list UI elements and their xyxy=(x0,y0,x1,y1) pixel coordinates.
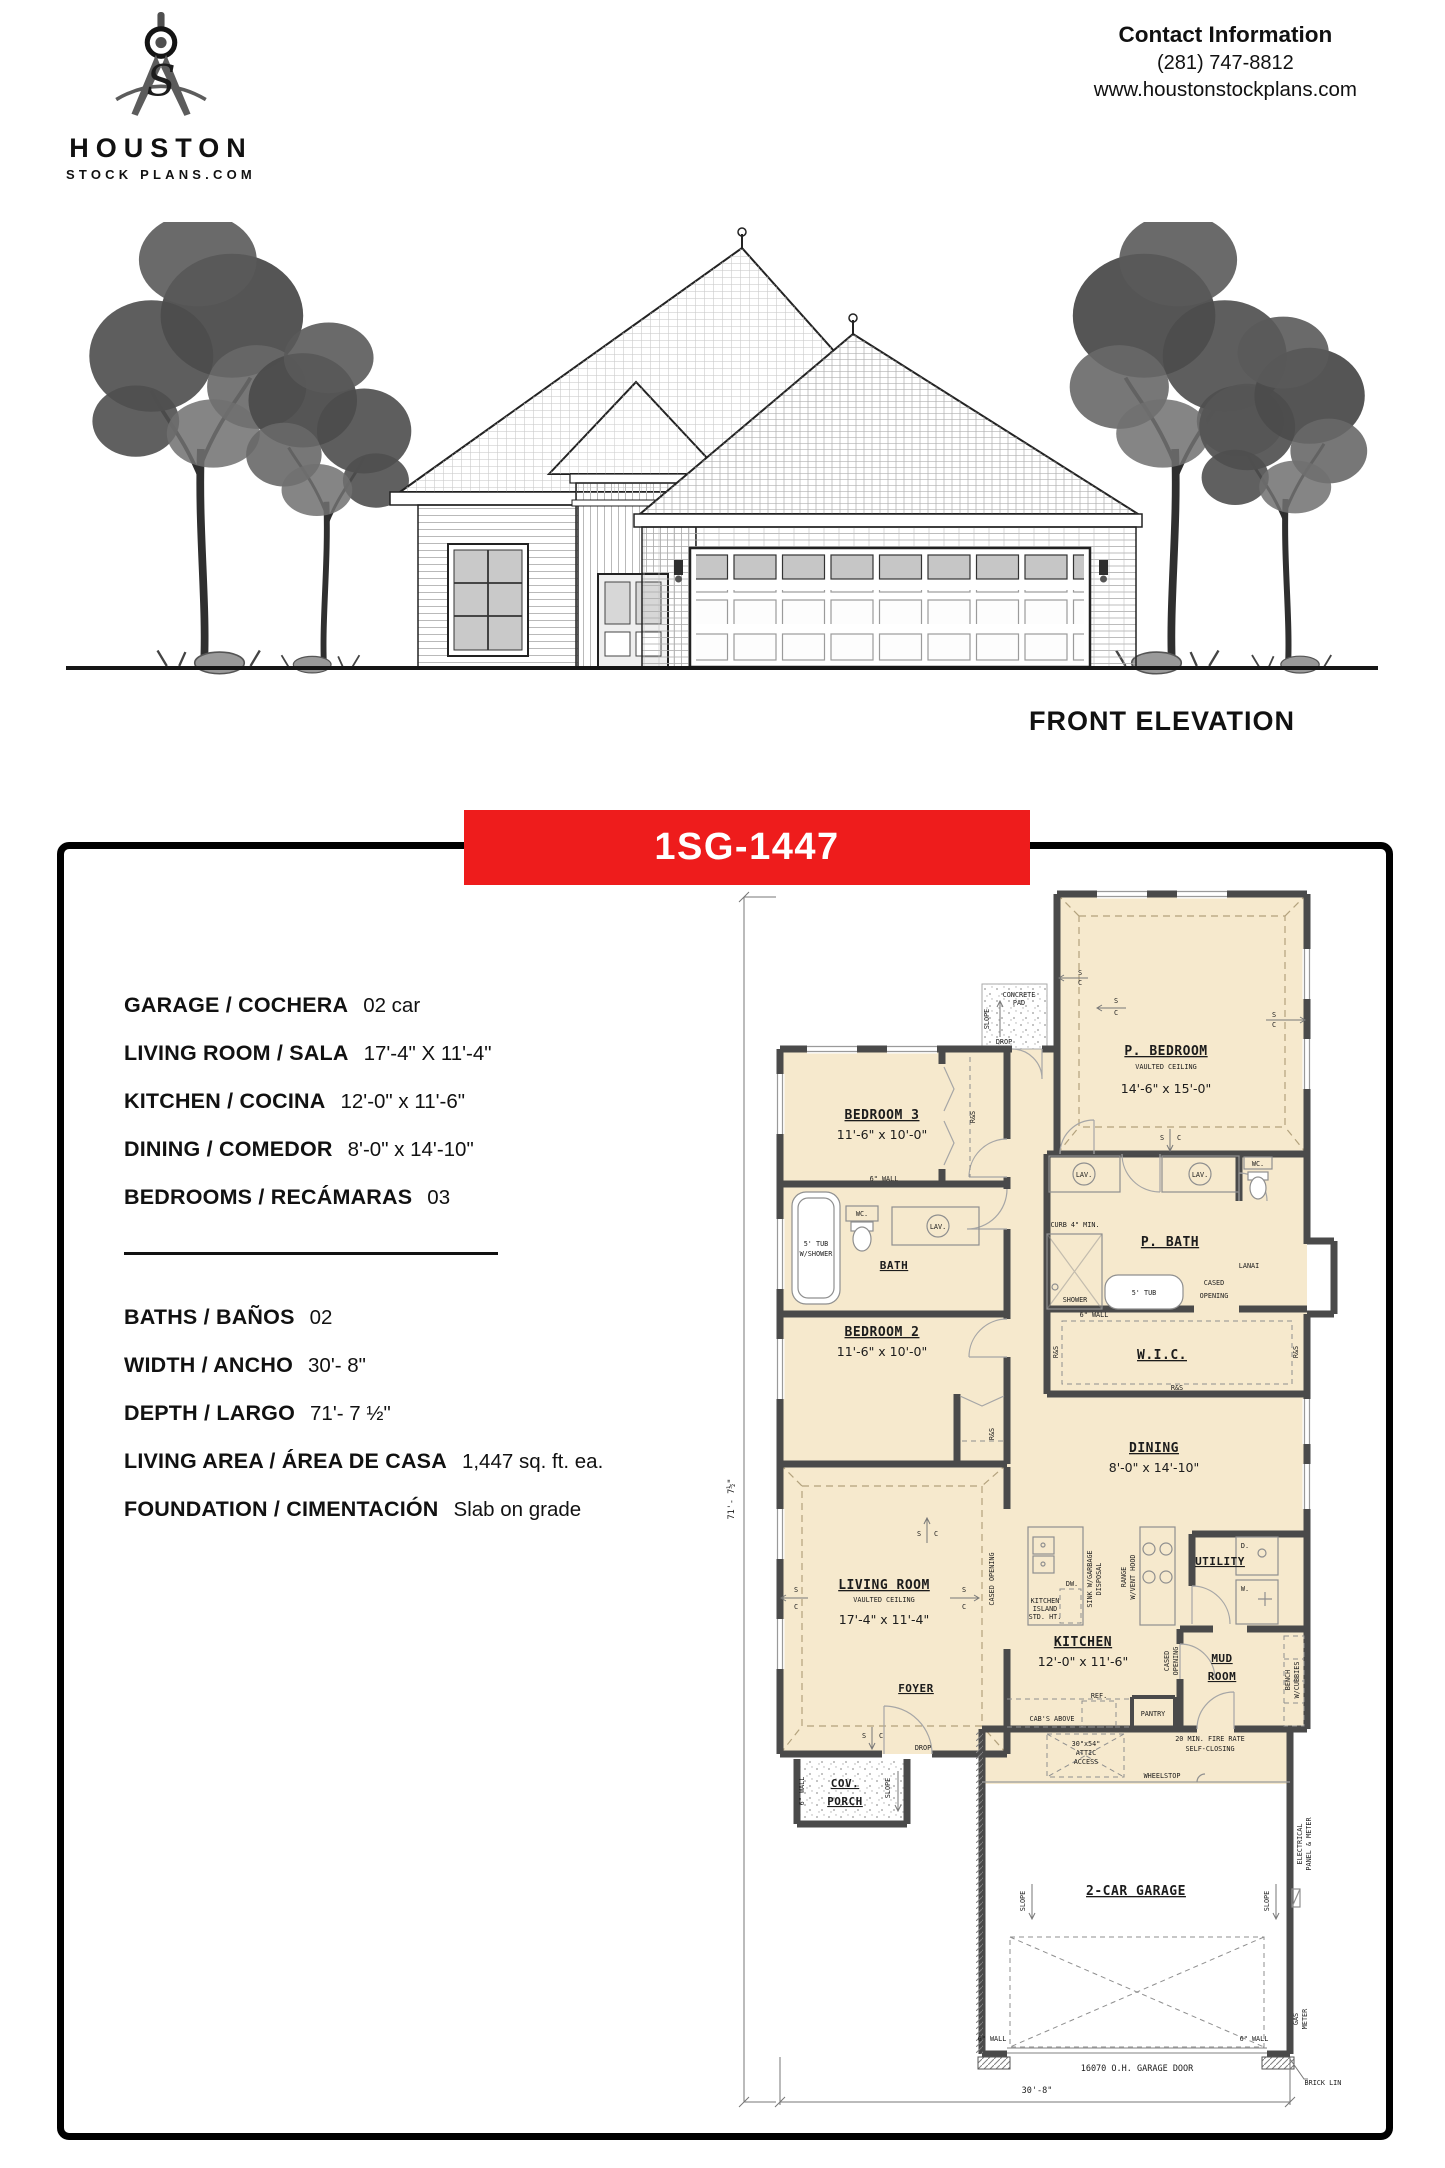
spec-label: BEDROOMS / RECÁMARAS xyxy=(124,1185,412,1209)
sc-marker-s: S xyxy=(962,1586,966,1594)
label-tub-shower-2: W/SHOWER xyxy=(800,1250,834,1258)
spec-value: 71'- 7 ½" xyxy=(310,1402,391,1425)
label-rod-shelf: R&S xyxy=(988,1428,996,1440)
label-rod-shelf: R&S xyxy=(969,1111,977,1123)
label-tub5: 5' TUB xyxy=(1132,1289,1157,1297)
sc-marker-s: S xyxy=(862,1732,866,1740)
spec-label: BATHS / BAÑOS xyxy=(124,1305,295,1329)
spec-label: LIVING AREA / ÁREA DE CASA xyxy=(124,1449,447,1473)
label-slope: SLOPE xyxy=(884,1778,892,1798)
room-label-p-bath: P. BATH xyxy=(1141,1235,1199,1250)
room-label-p-bedroom: P. BEDROOM xyxy=(1124,1044,1207,1059)
label-sink-2: DISPOSAL xyxy=(1095,1563,1103,1596)
room-label-kitchen: KITCHEN xyxy=(1054,1635,1112,1650)
label-garage-door: 16070 O.H. GARAGE DOOR xyxy=(1081,2064,1194,2074)
sc-marker-c: C xyxy=(1078,979,1082,987)
label-sink-1: SINK W/GARBAGE xyxy=(1086,1550,1094,1607)
spec-divider xyxy=(124,1252,498,1255)
floor-plan: S C S C S C S C S C S C S C xyxy=(712,879,1342,2149)
room-label-utility: UTILITY xyxy=(1195,1555,1245,1568)
label-attic-3: ACCESS xyxy=(1074,1758,1099,1766)
spec-list: GARAGE / COCHERA02 car LIVING ROOM / SAL… xyxy=(124,993,724,1545)
drafting-compass-icon: S xyxy=(107,12,215,126)
label-cased-1: CASED xyxy=(1204,1279,1224,1287)
logo-domain: STOCK PLANS.COM xyxy=(58,167,264,182)
label-fire-rate-1: 20 MIN. FIRE RATE xyxy=(1175,1735,1245,1743)
room-label-porch-1: COV. xyxy=(831,1777,860,1790)
logo-monogram: S xyxy=(146,56,175,106)
label-shower: SHOWER xyxy=(1063,1296,1088,1304)
spec-label: LIVING ROOM / SALA xyxy=(124,1041,349,1065)
spec-row: WIDTH / ANCHO30'- 8" xyxy=(124,1353,724,1378)
spec-row: GARAGE / COCHERA02 car xyxy=(124,993,724,1018)
spec-label: KITCHEN / COCINA xyxy=(124,1089,325,1113)
contact-phone: (281) 747-8812 xyxy=(1094,50,1357,76)
label-range-2: W/VENT HOOD xyxy=(1129,1554,1137,1599)
sc-marker-s: S xyxy=(1114,997,1118,1005)
spec-label: WIDTH / ANCHO xyxy=(124,1353,293,1377)
label-cased-2: OPENING xyxy=(1200,1292,1229,1300)
dim-width: 30'-8" xyxy=(1022,2086,1053,2096)
label-slope: SLOPE xyxy=(1019,1891,1027,1911)
contact-website[interactable]: www.houstonstockplans.com xyxy=(1094,76,1357,103)
label-dryer: D. xyxy=(1241,1542,1249,1550)
spec-row: BEDROOMS / RECÁMARAS03 xyxy=(124,1185,724,1210)
spec-value: 30'- 8" xyxy=(308,1354,366,1377)
room-label-bedroom2: BEDROOM 2 xyxy=(845,1325,920,1340)
label-tub-shower-1: 5' TUB xyxy=(804,1240,829,1248)
sc-marker-c: C xyxy=(879,1732,883,1740)
sc-marker-c: C xyxy=(1114,1009,1118,1017)
contact-title: Contact Information xyxy=(1094,20,1357,50)
label-cabs-above: CAB'S ABOVE xyxy=(1029,1715,1074,1723)
label-dw: DW. xyxy=(1066,1580,1078,1588)
spec-row: DINING / COMEDOR8'-0" x 14'-10" xyxy=(124,1137,724,1162)
label-6in-wall: 6" WALL xyxy=(798,1777,806,1806)
label-island-3: STD. HT. xyxy=(1029,1613,1062,1621)
spec-row: FOUNDATION / CIMENTACIÓNSlab on grade xyxy=(124,1497,724,1522)
spec-value: 02 xyxy=(310,1306,333,1329)
spec-value: 8'-0" x 14'-10" xyxy=(348,1138,474,1161)
room-label-bedroom3: BEDROOM 3 xyxy=(845,1108,920,1123)
label-concrete-pad-2: PAD xyxy=(1013,999,1025,1007)
room-ceiling-living: VAULTED CEILING xyxy=(853,1596,914,1604)
room-label-wic: W.I.C. xyxy=(1137,1348,1187,1363)
label-electrical-1: ELECTRICAL xyxy=(1296,1824,1304,1865)
label-gas-1: GAS xyxy=(1292,2013,1300,2025)
label-attic-1: 30"x54" xyxy=(1072,1740,1101,1748)
room-label-bath: BATH xyxy=(880,1259,909,1272)
room-label-dining: DINING xyxy=(1129,1441,1179,1456)
label-wc: WC. xyxy=(856,1210,868,1218)
room-label-mud-1: MUD xyxy=(1211,1652,1232,1665)
room-dims-p-bedroom: 14'-6" x 15'-0" xyxy=(1121,1081,1211,1096)
spec-label: GARAGE / COCHERA xyxy=(124,993,348,1017)
room-label-garage: 2-CAR GARAGE xyxy=(1086,1884,1186,1899)
label-rod-shelf: R&S xyxy=(1171,1384,1183,1392)
spec-label: DINING / COMEDOR xyxy=(124,1137,333,1161)
label-slope: SLOPE xyxy=(1263,1891,1271,1911)
label-cased-opening: CASED OPENING xyxy=(988,1552,996,1605)
label-wheelstop: WHEELSTOP xyxy=(1144,1772,1181,1780)
label-rod-shelf: R&S xyxy=(1052,1346,1060,1358)
sc-marker-c: C xyxy=(1272,1021,1276,1029)
sc-marker-c: C xyxy=(934,1530,938,1538)
spec-row: LIVING ROOM / SALA17'-4" X 11'-4" xyxy=(124,1041,724,1066)
spec-value: 03 xyxy=(427,1186,450,1209)
label-rod-shelf: R&S xyxy=(1292,1346,1300,1358)
label-drop: DROP xyxy=(915,1744,931,1752)
room-dims-bedroom3: 11'-6" x 10'-0" xyxy=(837,1127,927,1142)
plan-number-banner: 1SG-1447 xyxy=(464,810,1030,885)
sc-marker-c: C xyxy=(794,1603,798,1611)
label-concrete-pad-1: CONCRETE xyxy=(1003,991,1036,999)
spec-value: 1,447 sq. ft. ea. xyxy=(462,1450,603,1473)
room-ceiling-p-bedroom: VAULTED CEILING xyxy=(1135,1063,1196,1071)
label-bench-1: BENCH xyxy=(1284,1670,1292,1690)
label-lav: LAV. xyxy=(1076,1171,1092,1179)
spec-value: 17'-4" X 11'-4" xyxy=(364,1042,492,1065)
label-gas-2: METER xyxy=(1301,2008,1309,2029)
brick-veneer-hatch xyxy=(978,2057,1010,2069)
sc-marker-s: S xyxy=(1160,1134,1164,1142)
label-6in-wall: 6" WALL xyxy=(1080,1311,1109,1319)
label-6in-wall: 6" WALL xyxy=(1240,2035,1269,2043)
label-brick-line: BRICK LINE xyxy=(1305,2079,1342,2087)
sc-marker-s: S xyxy=(794,1586,798,1594)
room-label-foyer: FOYER xyxy=(898,1682,934,1695)
room-label-mud-2: ROOM xyxy=(1208,1670,1237,1683)
label-slope: SLOPE xyxy=(983,1009,991,1029)
label-range-1: RANGE xyxy=(1120,1567,1128,1587)
label-washer: W. xyxy=(1241,1585,1249,1593)
spec-value: Slab on grade xyxy=(454,1498,582,1521)
brick-veneer-hatch xyxy=(1262,2057,1294,2069)
sc-marker-s: S xyxy=(917,1530,921,1538)
plan-card: 1SG-1447 GARAGE / COCHERA02 car LIVING R… xyxy=(57,842,1393,2140)
house-elevation xyxy=(390,228,1142,667)
room-dims-dining: 8'-0" x 14'-10" xyxy=(1109,1460,1199,1475)
dim-depth: 71'- 7½" xyxy=(726,1479,737,1520)
label-wc: WC. xyxy=(1252,1160,1264,1168)
label-cased-1: CASED xyxy=(1163,1651,1171,1671)
room-dims-bedroom2: 11'-6" x 10'-0" xyxy=(837,1344,927,1359)
spec-value: 12'-0" x 11'-6" xyxy=(340,1090,465,1113)
label-fire-rate-2: SELF-CLOSING xyxy=(1185,1745,1234,1753)
label-drop: DROP xyxy=(996,1038,1012,1046)
spec-label: FOUNDATION / CIMENTACIÓN xyxy=(124,1497,439,1521)
sc-marker-s: S xyxy=(1078,969,1082,977)
contact-block: Contact Information (281) 747-8812 www.h… xyxy=(1094,20,1357,103)
label-ref: REF. xyxy=(1091,1692,1107,1700)
spec-row: KITCHEN / COCINA12'-0" x 11'-6" xyxy=(124,1089,724,1114)
label-lanai: LANAI xyxy=(1239,1262,1259,1270)
label-island-2: ISLAND xyxy=(1033,1605,1058,1613)
room-dims-living: 17'-4" x 11'-4" xyxy=(839,1612,929,1627)
room-dims-kitchen: 12'-0" x 11'-6" xyxy=(1038,1654,1128,1669)
label-attic-2: ATTIC xyxy=(1076,1749,1096,1757)
room-label-living: LIVING ROOM xyxy=(838,1578,930,1593)
label-6in-wall: 6" WALL xyxy=(978,2035,1007,2043)
label-island-1: KITCHEN xyxy=(1031,1597,1060,1605)
page: S HOUSTON STOCK PLANS.COM Contact Inform… xyxy=(0,0,1445,2168)
label-curb: CURB 4" MIN. xyxy=(1050,1221,1099,1229)
label-electrical-2: PANEL & METER xyxy=(1305,1816,1313,1870)
spec-row: LIVING AREA / ÁREA DE CASA1,447 sq. ft. … xyxy=(124,1449,724,1474)
label-6in-wall: 6" WALL xyxy=(870,1175,899,1183)
room-label-porch-2: PORCH xyxy=(827,1795,863,1808)
spec-row: DEPTH / LARGO71'- 7 ½" xyxy=(124,1401,724,1426)
sc-marker-c: C xyxy=(1177,1134,1181,1142)
spec-value: 02 car xyxy=(363,994,420,1017)
label-lav: LAV. xyxy=(930,1223,946,1231)
sc-marker-s: S xyxy=(1272,1011,1276,1019)
label-bench-2: W/CUBBIES xyxy=(1293,1662,1301,1699)
brick-veneer-hatch xyxy=(976,1732,983,2054)
sc-marker-c: C xyxy=(962,1603,966,1611)
elevation-caption: FRONT ELEVATION xyxy=(1029,706,1295,737)
front-elevation-drawing xyxy=(52,222,1392,692)
spec-label: DEPTH / LARGO xyxy=(124,1401,295,1425)
company-logo: S HOUSTON STOCK PLANS.COM xyxy=(58,12,264,182)
logo-name: HOUSTON xyxy=(58,133,264,164)
label-lav: LAV. xyxy=(1192,1171,1208,1179)
label-cased-2: OPENING xyxy=(1172,1647,1180,1676)
spec-row: BATHS / BAÑOS02 xyxy=(124,1305,724,1330)
label-pantry: PANTRY xyxy=(1141,1710,1166,1718)
